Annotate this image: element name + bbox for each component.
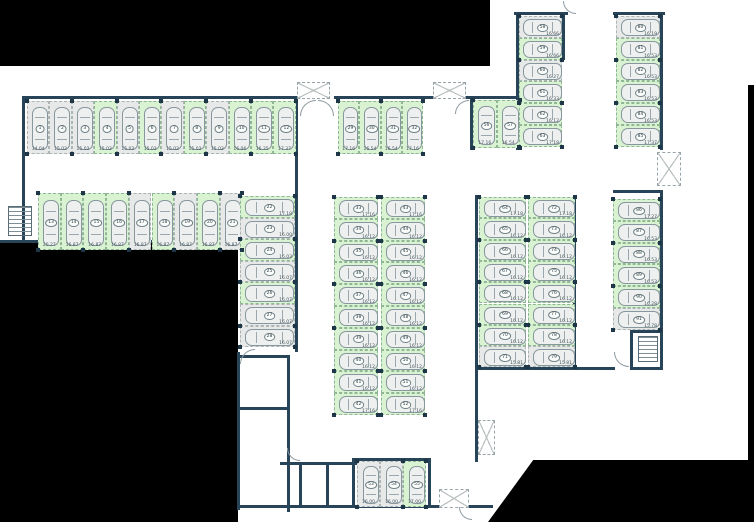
elevator-shaft-icon <box>657 152 681 186</box>
parking-space-81[interactable]: 8116.53 <box>616 38 660 60</box>
structural-column <box>573 195 577 199</box>
parking-space-38[interactable]: 3816.12 <box>334 306 378 328</box>
structural-column <box>332 282 336 286</box>
structural-column <box>423 239 427 243</box>
car-icon: 14 <box>66 200 82 246</box>
wall-segment <box>562 12 565 60</box>
parking-space-85[interactable]: 8517.37 <box>616 125 660 147</box>
parking-space-51[interactable]: 5116.12 <box>381 371 425 393</box>
parking-space-78[interactable]: 7816.12 <box>528 325 575 346</box>
structural-column <box>517 58 521 62</box>
structural-column <box>471 146 475 150</box>
space-number: 64 <box>499 205 511 213</box>
parking-space-18[interactable]: 1816.87 <box>152 193 175 250</box>
parking-space-87[interactable]: 8716.53 <box>613 221 660 243</box>
parking-space-60[interactable]: 6016.27 <box>519 60 562 82</box>
parking-space-39[interactable]: 3916.12 <box>334 328 378 350</box>
structural-column <box>658 197 662 201</box>
space-number: 83 <box>635 89 647 97</box>
car-icon: 10 <box>234 107 250 150</box>
structural-column <box>401 459 405 463</box>
space-length-label: 16.53 <box>644 97 657 102</box>
structural-column <box>614 145 618 149</box>
space-number: 36 <box>353 270 365 278</box>
structural-column <box>614 58 618 62</box>
parking-space-88[interactable]: 8816.53 <box>613 243 660 265</box>
masked-region <box>0 243 238 522</box>
structural-column <box>477 195 481 199</box>
parking-space-55[interactable]: 5517.00 <box>403 461 426 507</box>
structural-column <box>379 239 383 243</box>
structural-column <box>517 145 521 149</box>
car-icon: 13 <box>43 200 59 246</box>
parking-space-24[interactable]: 2416.03 <box>240 239 295 261</box>
space-length-label: 16.12 <box>409 256 422 261</box>
car-icon: 19 <box>179 200 195 246</box>
structural-column <box>477 323 481 327</box>
parking-space-83[interactable]: 8316.53 <box>616 81 660 103</box>
space-length-label: 16.07 <box>279 341 292 346</box>
space-length-label: 16.12 <box>362 278 375 283</box>
wall-segment <box>287 355 290 512</box>
space-number: 67 <box>499 268 511 276</box>
parking-space-19[interactable]: 1916.87 <box>174 193 197 250</box>
parking-space-84[interactable]: 8416.53 <box>616 103 660 125</box>
space-length-label: 16.12 <box>546 119 559 124</box>
car-icon: 54 <box>386 466 402 504</box>
space-length-label: 16.12 <box>510 340 523 345</box>
space-length-label: 15.02 <box>140 147 160 152</box>
space-length-label: 15.02 <box>73 147 93 152</box>
space-number: 18 <box>159 219 171 227</box>
structural-column <box>560 101 564 105</box>
space-length-label: 16.07 <box>279 276 292 281</box>
space-length-label: 14.04 <box>28 147 48 152</box>
space-number: 82 <box>635 67 647 75</box>
parking-space-3[interactable]: 315.02 <box>72 101 94 154</box>
parking-space-31[interactable]: 3116.54 <box>381 101 402 154</box>
space-length-label: 16.12 <box>409 235 422 240</box>
parking-space-56[interactable]: 5617.16 <box>473 100 497 148</box>
space-length-label: 15.81 <box>559 361 572 366</box>
wall-segment <box>299 463 302 506</box>
elevator-shaft-icon <box>439 489 469 508</box>
parking-space-29[interactable]: 2917.16 <box>338 101 359 154</box>
space-number: 41 <box>353 379 365 387</box>
structural-column <box>517 101 521 105</box>
structural-column <box>611 197 615 201</box>
space-length-label: 17.18 <box>279 212 292 217</box>
parking-space-82[interactable]: 8216.53 <box>616 60 660 82</box>
space-length-label: 16.53 <box>644 119 657 124</box>
space-length-label: 16.12 <box>510 255 523 260</box>
parking-space-6[interactable]: 615.02 <box>139 101 161 154</box>
space-number: 53 <box>365 481 377 489</box>
space-number: 58 <box>537 24 549 32</box>
space-length-label: 16.87 <box>175 243 196 248</box>
space-length-label: 17.37 <box>274 147 294 152</box>
parking-space-80[interactable]: 8016.19 <box>616 16 660 38</box>
structural-column <box>658 145 662 149</box>
parking-space-70[interactable]: 7016.12 <box>479 325 526 346</box>
space-length-label: 16.12 <box>559 340 572 345</box>
parking-space-46[interactable]: 4616.12 <box>381 262 425 284</box>
car-icon: 4 <box>99 107 115 150</box>
space-length-label: 16.33 <box>546 97 559 102</box>
car-icon: 1 <box>32 107 48 150</box>
wall-segment <box>334 96 522 99</box>
parking-space-22[interactable]: 2217.18 <box>240 196 295 218</box>
space-number: 1 <box>36 125 45 133</box>
parking-space-37[interactable]: 3716.12 <box>334 284 378 306</box>
parking-space-40[interactable]: 4016.12 <box>334 350 378 372</box>
parking-space-13[interactable]: 1320.27 <box>38 193 61 250</box>
car-icon: 9 <box>211 107 227 150</box>
space-length-label: 16.12 <box>510 276 523 281</box>
parking-space-42[interactable]: 4217.16 <box>334 393 378 415</box>
parking-space-50[interactable]: 5016.12 <box>381 350 425 372</box>
door-swing-icon <box>300 100 316 116</box>
structural-column <box>70 152 74 156</box>
space-length-label: 17.37 <box>644 141 657 146</box>
wall-segment <box>280 462 358 465</box>
structural-column <box>401 505 405 509</box>
structural-column <box>611 241 615 245</box>
parking-space-74[interactable]: 7416.12 <box>528 240 575 261</box>
parking-space-71[interactable]: 7115.81 <box>479 346 526 367</box>
space-length-label: 16.28 <box>644 302 657 307</box>
structural-column <box>379 195 383 199</box>
parking-space-8[interactable]: 815.02 <box>184 101 206 154</box>
parking-space-52[interactable]: 5217.16 <box>381 393 425 415</box>
structural-column <box>379 413 383 417</box>
parking-space-58[interactable]: 5816.66 <box>519 16 562 38</box>
elevator-shaft-icon <box>297 82 330 99</box>
door-swing-icon <box>459 507 472 520</box>
parking-space-76[interactable]: 7616.12 <box>528 282 575 303</box>
car-icon: 30 <box>364 107 379 150</box>
structural-column <box>238 237 242 241</box>
wall-segment <box>660 190 663 330</box>
space-number: 39 <box>353 335 365 343</box>
structural-column <box>238 324 242 328</box>
space-length-label: 16.12 <box>409 344 422 349</box>
space-number: 55 <box>411 481 423 489</box>
structural-column <box>294 152 298 156</box>
space-number: 66 <box>499 247 511 255</box>
structural-column <box>526 280 530 284</box>
space-length-label: 16.53 <box>644 258 657 263</box>
parking-space-35[interactable]: 3516.12 <box>334 241 378 263</box>
masked-region <box>0 0 490 66</box>
structural-column <box>573 280 577 284</box>
parking-space-34[interactable]: 3416.12 <box>334 219 378 241</box>
structural-column <box>332 369 336 373</box>
parking-space-41[interactable]: 4116.12 <box>334 371 378 393</box>
parking-space-67[interactable]: 6716.12 <box>479 261 526 282</box>
structural-column <box>332 239 336 243</box>
space-length-label: 16.53 <box>644 280 657 285</box>
parking-space-53[interactable]: 5316.00 <box>357 461 380 507</box>
structural-column <box>238 280 242 284</box>
elevator-shaft-icon <box>478 420 495 455</box>
space-number: 59 <box>537 45 549 53</box>
space-length-label: 16.66 <box>546 54 559 59</box>
structural-column <box>25 99 29 103</box>
space-number: 16 <box>113 219 125 227</box>
space-number: 26 <box>264 290 276 298</box>
space-length-label: 17.16 <box>403 147 422 152</box>
space-length-label: 16.53 <box>644 237 657 242</box>
stairs-icon <box>8 206 32 236</box>
space-number: 15 <box>91 219 103 227</box>
space-length-label: 16.06 <box>230 147 250 152</box>
space-length-label: 17.18 <box>510 212 523 217</box>
space-length-label: 16.35 <box>252 147 272 152</box>
parking-space-69[interactable]: 6916.12 <box>479 304 526 325</box>
structural-column <box>218 191 222 195</box>
space-number: 40 <box>353 357 365 365</box>
space-length-label: 16.66 <box>546 32 559 37</box>
parking-space-2[interactable]: 215.02 <box>49 101 71 154</box>
space-length-label: 16.12 <box>510 297 523 302</box>
space-number: 62 <box>537 111 549 119</box>
structural-column <box>560 58 564 62</box>
structural-column <box>560 145 564 149</box>
space-length-label: 16.12 <box>510 234 523 239</box>
structural-column <box>658 14 662 18</box>
space-number: 11 <box>258 125 270 133</box>
space-length-label: 17.18 <box>559 212 572 217</box>
parking-space-49[interactable]: 4916.12 <box>381 328 425 350</box>
structural-column <box>25 152 29 156</box>
structural-column <box>658 328 662 332</box>
structural-column <box>424 459 428 463</box>
structural-column <box>526 195 530 199</box>
space-number: 76 <box>548 290 560 298</box>
elevator-shaft-icon <box>433 82 466 99</box>
parking-space-63[interactable]: 6317.18 <box>519 125 562 147</box>
parking-space-43[interactable]: 4317.16 <box>381 197 425 219</box>
space-length-label: 16.03 <box>279 255 292 260</box>
parking-space-25[interactable]: 2516.07 <box>240 261 295 283</box>
space-length-label: 16.87 <box>107 243 128 248</box>
parking-space-9[interactable]: 915.02 <box>206 101 228 154</box>
structural-column <box>379 99 383 103</box>
car-icon: 8 <box>189 107 205 150</box>
parking-space-72[interactable]: 7217.18 <box>528 197 575 218</box>
parking-space-89[interactable]: 8916.53 <box>613 264 660 286</box>
car-icon: 18 <box>157 200 173 246</box>
space-length-label: 16.12 <box>559 234 572 239</box>
structural-column <box>115 99 119 103</box>
parking-space-45[interactable]: 4516.12 <box>381 241 425 263</box>
car-icon: 2 <box>54 107 70 150</box>
parking-space-30[interactable]: 3016.54 <box>359 101 380 154</box>
parking-space-54[interactable]: 5416.00 <box>380 461 403 507</box>
space-number: 22 <box>264 204 276 212</box>
car-icon: 16 <box>111 200 127 246</box>
structural-column <box>421 99 425 103</box>
structural-column <box>36 248 40 252</box>
parking-space-21[interactable]: 2116.87 <box>220 193 243 250</box>
parking-space-61[interactable]: 6116.33 <box>519 81 562 103</box>
masked-region <box>748 85 754 462</box>
structural-column <box>355 459 359 463</box>
parking-space-36[interactable]: 3616.12 <box>334 262 378 284</box>
space-length-label: 16.12 <box>362 256 375 261</box>
parking-space-4[interactable]: 415.02 <box>94 101 116 154</box>
space-number: 68 <box>499 290 511 298</box>
parking-space-11[interactable]: 1116.35 <box>251 101 273 154</box>
space-length-label: 16.87 <box>221 243 242 248</box>
parking-space-17[interactable]: 1716.87 <box>129 193 152 250</box>
space-number: 89 <box>633 272 645 280</box>
car-icon: 32 <box>407 107 422 150</box>
space-length-label: 17.16 <box>409 409 422 414</box>
space-length-label: 16.12 <box>362 300 375 305</box>
parking-space-26[interactable]: 2616.07 <box>240 282 295 304</box>
parking-space-48[interactable]: 4816.12 <box>381 306 425 328</box>
parking-space-86[interactable]: 8617.27 <box>613 199 660 221</box>
parking-space-77[interactable]: 7716.12 <box>528 304 575 325</box>
structural-column <box>204 152 208 156</box>
wall-segment <box>660 15 663 150</box>
structural-column <box>81 191 85 195</box>
structural-column <box>477 365 481 369</box>
space-length-label: 16.07 <box>279 320 292 325</box>
car-icon: 53 <box>363 466 379 504</box>
space-number: 52 <box>400 401 412 409</box>
space-length-label: 16.19 <box>644 32 657 37</box>
wall-segment <box>613 190 663 193</box>
space-number: 28 <box>264 333 276 341</box>
space-number: 84 <box>635 111 647 119</box>
parking-space-91[interactable]: 9115.78 <box>613 308 660 330</box>
space-length-label: 16.00 <box>381 500 402 505</box>
space-number: 85 <box>635 133 647 141</box>
structural-column <box>293 280 297 284</box>
parking-space-66[interactable]: 6616.12 <box>479 240 526 261</box>
space-length-label: 16.12 <box>559 276 572 281</box>
space-number: 90 <box>633 294 645 302</box>
parking-space-20[interactable]: 2016.87 <box>197 193 220 250</box>
parking-space-16[interactable]: 1616.87 <box>106 193 129 250</box>
parking-space-27[interactable]: 2716.07 <box>240 304 295 326</box>
parking-space-68[interactable]: 6816.12 <box>479 282 526 303</box>
space-number: 74 <box>548 247 560 255</box>
car-icon: 15 <box>88 200 104 246</box>
parking-space-23[interactable]: 2316.00 <box>240 218 295 240</box>
parking-space-33[interactable]: 3317.16 <box>334 197 378 219</box>
car-icon: 17 <box>134 200 150 246</box>
parking-space-15[interactable]: 1516.87 <box>83 193 106 250</box>
parking-space-57[interactable]: 5716.54 <box>497 100 521 148</box>
space-number: 38 <box>353 314 365 322</box>
space-length-label: 20.27 <box>39 243 60 248</box>
parking-space-73[interactable]: 7316.12 <box>528 218 575 239</box>
space-number: 33 <box>353 205 365 213</box>
space-number: 27 <box>264 312 276 320</box>
parking-space-65[interactable]: 6516.12 <box>479 218 526 239</box>
space-length-label: 17.16 <box>362 409 375 414</box>
parking-space-28[interactable]: 2816.07 <box>240 326 295 348</box>
space-number: 69 <box>499 311 511 319</box>
space-number: 12 <box>281 125 293 133</box>
parking-space-32[interactable]: 3217.16 <box>402 101 423 154</box>
parking-space-79[interactable]: 7915.81 <box>528 346 575 367</box>
parking-space-1[interactable]: 114.04 <box>27 101 49 154</box>
door-swing-icon <box>318 100 334 116</box>
structural-column <box>159 99 163 103</box>
space-length-label: 16.12 <box>362 322 375 327</box>
car-icon: 5 <box>122 107 138 150</box>
parking-space-59[interactable]: 5916.66 <box>519 38 562 60</box>
space-number: 61 <box>537 89 549 97</box>
space-number: 24 <box>264 247 276 255</box>
space-length-label: 16.00 <box>279 233 292 238</box>
space-number: 75 <box>548 268 560 276</box>
car-icon: 7 <box>166 107 182 150</box>
space-number: 9 <box>215 125 224 133</box>
space-length-label: 16.87 <box>84 243 105 248</box>
car-icon: 6 <box>144 107 160 150</box>
car-icon: 20 <box>202 200 218 246</box>
parking-space-64[interactable]: 6417.18 <box>479 197 526 218</box>
parking-space-7[interactable]: 715.02 <box>161 101 183 154</box>
structural-column <box>332 413 336 417</box>
space-number: 81 <box>635 45 647 53</box>
wall-segment <box>237 352 240 510</box>
space-length-label: 16.12 <box>409 322 422 327</box>
space-number: 17 <box>136 219 148 227</box>
wall-segment <box>630 367 663 370</box>
parking-space-10[interactable]: 1016.06 <box>229 101 251 154</box>
structural-column <box>423 195 427 199</box>
structural-column <box>526 365 530 369</box>
space-number: 6 <box>148 125 157 133</box>
car-icon: 57 <box>502 106 519 145</box>
parking-space-12[interactable]: 1217.37 <box>273 101 295 154</box>
structural-column <box>611 328 615 332</box>
structural-column <box>658 284 662 288</box>
parking-space-75[interactable]: 7516.12 <box>528 261 575 282</box>
space-length-label: 15.02 <box>162 147 182 152</box>
space-length-label: 15.78 <box>644 324 657 329</box>
structural-column <box>379 326 383 330</box>
space-number: 35 <box>353 248 365 256</box>
structural-column <box>614 14 618 18</box>
parking-space-14[interactable]: 1416.87 <box>61 193 84 250</box>
structural-column <box>293 345 297 349</box>
structural-column <box>127 191 131 195</box>
structural-column <box>238 345 242 349</box>
parking-space-5[interactable]: 515.02 <box>117 101 139 154</box>
parking-space-90[interactable]: 9016.28 <box>613 286 660 308</box>
wall-segment <box>660 330 663 370</box>
door-swing-icon <box>240 349 255 364</box>
car-icon: 3 <box>77 107 93 150</box>
space-number: 60 <box>537 67 549 75</box>
parking-space-47[interactable]: 4716.12 <box>381 284 425 306</box>
parking-space-44[interactable]: 4416.12 <box>381 219 425 241</box>
structural-column <box>658 101 662 105</box>
space-number: 8 <box>192 125 201 133</box>
parking-space-62[interactable]: 6216.12 <box>519 103 562 125</box>
wall-segment <box>326 463 329 506</box>
space-number: 86 <box>633 207 645 215</box>
space-number: 37 <box>353 292 365 300</box>
